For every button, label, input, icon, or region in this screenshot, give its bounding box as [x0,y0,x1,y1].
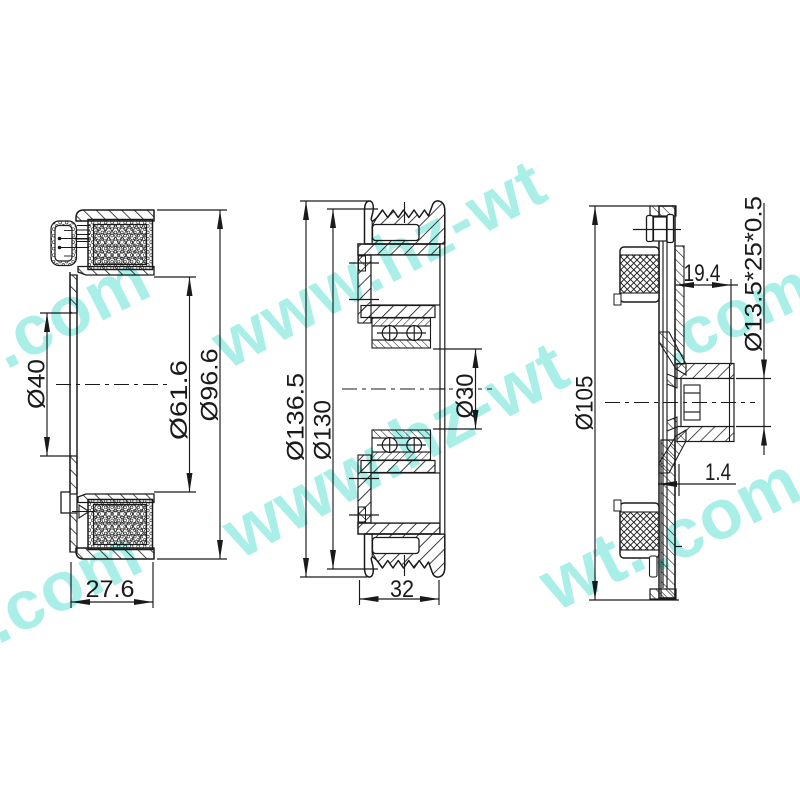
svg-text:Ø96.6: Ø96.6 [197,349,224,422]
svg-text:Ø61.6: Ø61.6 [166,360,193,440]
svg-text:32: 32 [390,576,414,603]
svg-text:Ø136.5: Ø136.5 [283,373,310,461]
svg-text:Ø105: Ø105 [572,376,599,431]
